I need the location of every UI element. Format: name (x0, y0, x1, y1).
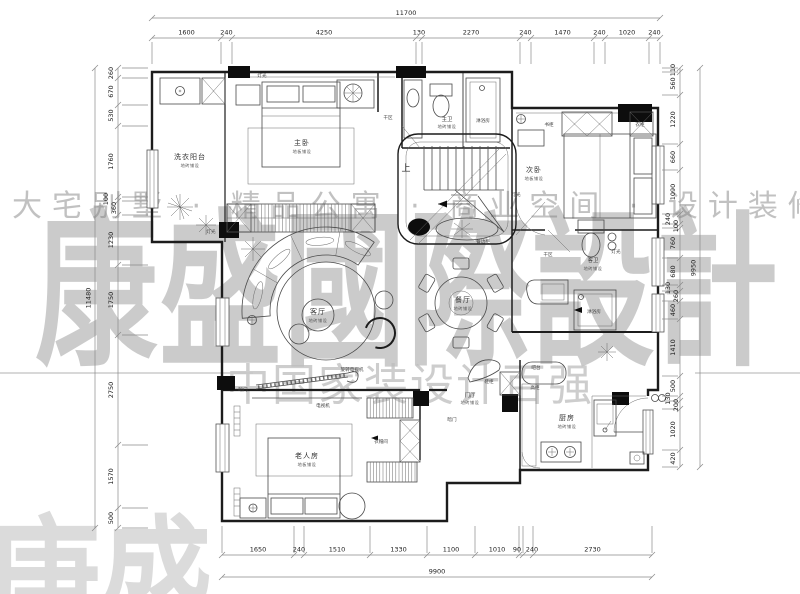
label-sideboard: 餐边柜 (476, 238, 490, 245)
label-kitchen-finish: 地砖铺设 (558, 423, 577, 430)
dim-label: 4250 (316, 29, 333, 37)
dim-label: 90 (513, 546, 521, 554)
dim-label: 500 (669, 380, 677, 392)
hatch-lines (370, 462, 415, 482)
label-up: 上 (401, 163, 410, 174)
dim-label: 240 (593, 29, 605, 37)
dim-label: 1410 (669, 339, 677, 356)
window-right-3 (652, 294, 664, 332)
label-shoe-cabinet: 鞋柜 (484, 378, 494, 385)
dim-label: 1020 (669, 421, 677, 438)
window-left-1 (216, 298, 229, 346)
dim-label: 1010 (489, 546, 506, 554)
dim-label: 100 (102, 193, 110, 205)
foyer (468, 360, 666, 402)
label-rotating-tv: 旋转电视机 (341, 366, 364, 373)
dim-label: 2730 (584, 546, 601, 554)
dim-total-label: 11480 (85, 288, 93, 309)
hatch-lines (370, 398, 412, 418)
dim-label: 1470 (554, 29, 571, 37)
label-light-4: 灯光 (611, 248, 621, 255)
label-dry-area-1: 干区 (383, 115, 393, 121)
dim-total-label: 11700 (396, 9, 417, 17)
label-foyer-finish: 地砖铺设 (461, 399, 480, 406)
label-dining-finish: 地砖铺设 (454, 305, 473, 312)
dim-label: 110 (669, 64, 677, 76)
dim-label: 1600 (178, 29, 195, 37)
label-light-3: 灯光 (511, 191, 521, 198)
dim-label: 1650 (250, 546, 267, 554)
dim-label: 1220 (669, 111, 677, 128)
label-light-1: 灯光 (257, 72, 267, 79)
label-foyer: 门厅 (465, 391, 476, 399)
label-guest-bath: 客卫 (588, 256, 599, 264)
dim-label: 130 (664, 392, 672, 404)
dim-label: 240 (220, 29, 232, 37)
room-labels: 洗衣阳台 地砖铺设 主卧 地板铺设 主卫 地砖铺设 淋浴房 干区 次卧 地板铺设… (174, 72, 645, 468)
label-living: 客厅 (310, 307, 326, 316)
label-tv: 电视机 (316, 402, 330, 409)
dim-label: 130 (413, 29, 425, 37)
guest-bath (527, 220, 616, 330)
dim-label: 660 (669, 151, 677, 163)
label-bar: 吧台 (531, 364, 541, 371)
dim-label: 240 (526, 546, 538, 554)
dim-label: 420 (669, 452, 677, 464)
label-second-bed-finish: 地板铺设 (525, 175, 544, 182)
dim-label: 1230 (107, 232, 115, 249)
tv-wall (252, 372, 362, 398)
dim-label: 1510 (329, 546, 346, 554)
label-guest-bath-finish: 地砖铺设 (584, 265, 603, 272)
master-bath (404, 78, 500, 142)
dim-label: 460 (669, 304, 677, 316)
window-right-1 (652, 146, 664, 204)
floor-plan-page: 大宅别墅 · 精品公寓 · 商业空间 · 设计装修 康盛國際設計 中国家装设计百… (0, 0, 800, 594)
plant-icon (167, 194, 193, 220)
dim-label: 670 (107, 85, 115, 97)
label-shower-1: 淋浴房 (476, 117, 490, 124)
label-master-bath-finish: 地砖铺设 (438, 123, 457, 130)
dim-label: 1090 (669, 184, 677, 201)
window-right-2 (652, 238, 664, 286)
dim-total-label: 9950 (690, 260, 698, 277)
dim-label: 1330 (390, 546, 407, 554)
kitchen (522, 343, 646, 468)
label-hidden-door-1: 暗门 (238, 386, 248, 393)
floor-plan-drawing: 洗衣阳台 地砖铺设 主卧 地板铺设 主卫 地砖铺设 淋浴房 干区 次卧 地板铺设… (0, 0, 800, 594)
dim-label: 1570 (107, 468, 115, 485)
dim-label: 240 (648, 29, 660, 37)
window-left-2 (216, 424, 229, 472)
window-kitchen (643, 410, 653, 454)
label-light-2: 灯光 (206, 228, 216, 235)
label-bookcase: 书柜 (544, 121, 554, 128)
dim-label: 360 (110, 202, 118, 214)
dim-total-label: 9900 (429, 568, 446, 576)
window-laundry (147, 150, 158, 208)
dim-right: 1105601220660109024010076068013026046014… (662, 64, 703, 470)
label-master-bed-finish: 地板铺设 (293, 148, 312, 155)
label-master-bath: 主卫 (442, 115, 453, 123)
plant-icon (598, 343, 616, 361)
label-laundry-finish: 地砖铺设 (181, 162, 200, 169)
dim-bottom: 165024015101330110010109024027309900 (219, 526, 655, 580)
dim-label: 240 (664, 213, 672, 225)
dim-label: 200 (672, 399, 680, 411)
dim-label: 500 (107, 512, 115, 524)
label-wardrobe: 衣柜 (635, 121, 645, 128)
master-bedroom (227, 80, 375, 232)
label-tall-cabinet: 高柜 (530, 384, 540, 391)
dim-label: 760 (669, 237, 677, 249)
dim-top: 1600240425013022702401470240102024011700 (149, 9, 663, 64)
sideboard (436, 218, 498, 240)
label-dry-area-2: 干区 (543, 252, 553, 258)
dim-label: 530 (107, 109, 115, 121)
label-dining: 餐厅 (455, 295, 471, 304)
label-cloakroom: 衣帽间 (374, 438, 388, 445)
label-second-bed: 次卧 (526, 165, 542, 174)
dim-label: 260 (672, 290, 680, 302)
dim-label: 1100 (443, 546, 460, 554)
label-hidden-door-2: 暗门 (447, 416, 457, 423)
label-master-bed: 主卧 (294, 138, 310, 147)
dim-label: 2270 (463, 29, 480, 37)
label-laundry: 洗衣阳台 (174, 152, 206, 161)
dim-label: 560 (669, 77, 677, 89)
plant-icon (451, 220, 473, 238)
label-living-finish: 地砖铺设 (309, 317, 328, 324)
dim-label: 680 (669, 265, 677, 277)
dim-label: 240 (519, 29, 531, 37)
dim-label: 100 (672, 220, 680, 232)
dim-label: 2750 (107, 382, 115, 399)
living-room (241, 227, 399, 360)
label-elder-finish: 地板铺设 (298, 461, 317, 468)
dim-label: 130 (664, 282, 672, 294)
dim-label: 260 (107, 67, 115, 79)
dim-left: 2606705301760100360123017502750157050011… (85, 65, 149, 531)
label-elder: 老人房 (295, 451, 319, 460)
dim-label: 1760 (107, 153, 115, 170)
label-kitchen: 厨房 (559, 413, 575, 422)
dim-label: 240 (293, 546, 305, 554)
dim-label: 1020 (619, 29, 636, 37)
dim-label: 1750 (107, 292, 115, 309)
label-shower-2: 淋浴房 (587, 308, 601, 315)
